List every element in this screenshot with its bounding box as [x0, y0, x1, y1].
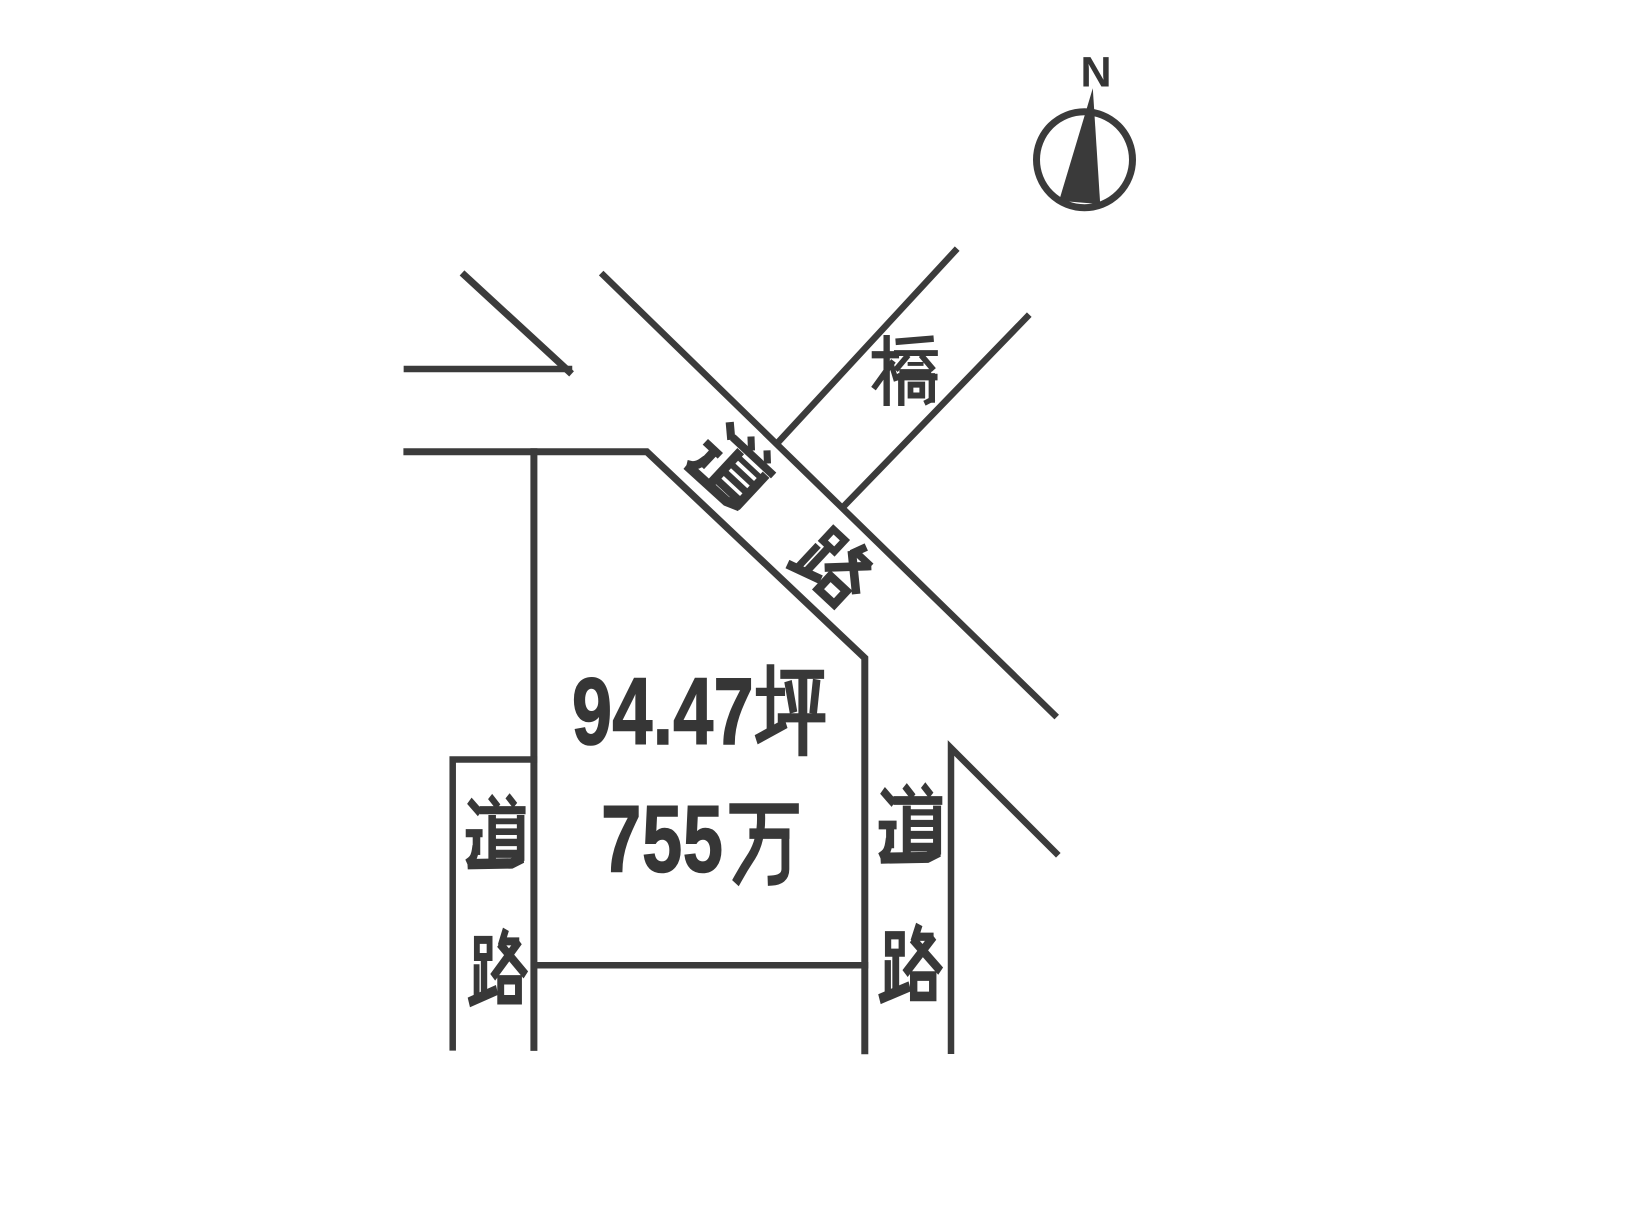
svg-text:755: 755: [601, 786, 723, 892]
svg-text:N: N: [1080, 49, 1111, 97]
svg-text:94.47: 94.47: [572, 658, 754, 764]
